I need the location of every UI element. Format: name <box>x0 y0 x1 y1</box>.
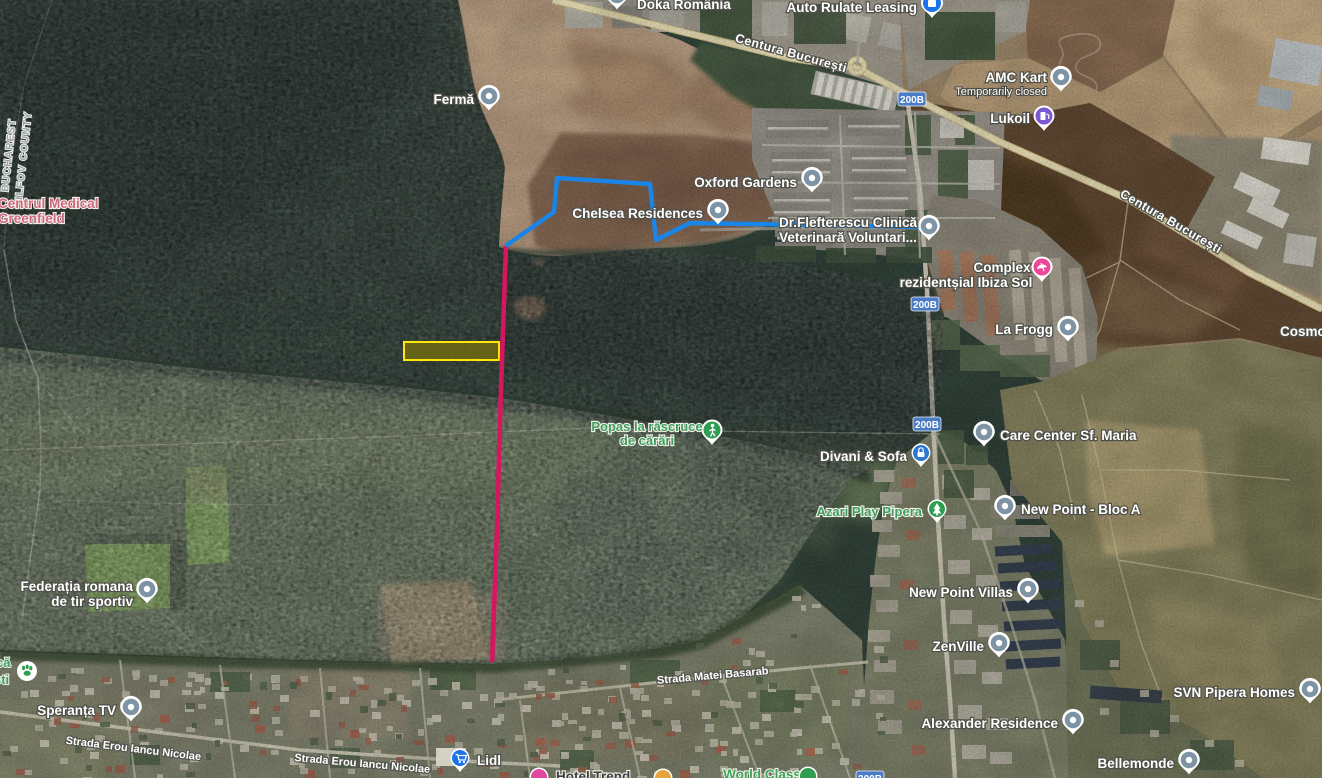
svg-text:Fermă: Fermă <box>433 92 474 107</box>
svg-text:AMC Kart: AMC Kart <box>985 70 1047 85</box>
svg-text:Chelsea Residences: Chelsea Residences <box>572 206 703 221</box>
svg-text:Bellemonde: Bellemonde <box>1097 756 1174 771</box>
svg-text:că: că <box>0 655 11 670</box>
svg-text:de tir sportiv: de tir sportiv <box>51 594 133 609</box>
svg-text:200B: 200B <box>913 300 937 311</box>
svg-text:Divani & Sofa: Divani & Sofa <box>820 449 908 464</box>
svg-text:200B: 200B <box>900 95 924 106</box>
svg-text:de cărări: de cărări <box>620 433 674 448</box>
svg-text:Dr.Flefterescu Clinică: Dr.Flefterescu Clinică <box>779 215 918 230</box>
svg-text:Auto Rulate Leasing: Auto Rulate Leasing <box>786 0 917 15</box>
svg-text:200B: 200B <box>858 774 882 778</box>
svg-text:rezidentșial Ibiza Sol: rezidentșial Ibiza Sol <box>900 275 1033 290</box>
svg-text:Alexander Residence: Alexander Residence <box>921 716 1058 731</box>
svg-text:ZenVille: ZenVille <box>932 639 984 654</box>
svg-text:Greenfield: Greenfield <box>0 211 65 226</box>
svg-text:Temporarily closed: Temporarily closed <box>955 86 1047 98</box>
svg-text:Complex: Complex <box>973 260 1031 275</box>
svg-text:Cosmo: Cosmo <box>1280 324 1322 339</box>
svg-text:Oxford Gardens: Oxford Gardens <box>694 175 797 190</box>
svg-text:Speranța TV: Speranța TV <box>37 703 116 718</box>
svg-text:La Frogg: La Frogg <box>995 322 1053 337</box>
svg-text:New Point - Bloc A: New Point - Bloc A <box>1021 502 1141 517</box>
svg-text:Doka România: Doka România <box>637 0 731 12</box>
svg-text:Hotel Trend: Hotel Trend <box>556 769 630 778</box>
svg-text:Veterinară Voluntari...: Veterinară Voluntari... <box>779 230 917 245</box>
svg-text:Azari Play Pipera: Azari Play Pipera <box>817 504 923 519</box>
svg-text:Lidl: Lidl <box>477 753 501 768</box>
svg-text:ști: ști <box>0 672 9 687</box>
svg-text:Care Center Sf. Maria: Care Center Sf. Maria <box>1000 428 1137 443</box>
svg-text:Centrul Medical: Centrul Medical <box>0 196 99 211</box>
svg-text:200B: 200B <box>915 420 939 431</box>
svg-text:World Class: World Class <box>723 767 801 778</box>
svg-text:Lukoil: Lukoil <box>990 111 1030 126</box>
svg-text:Popas la răscruce: Popas la răscruce <box>591 419 702 434</box>
svg-text:SVN Pipera Homes: SVN Pipera Homes <box>1173 685 1295 700</box>
svg-text:Federația romana: Federația romana <box>20 579 133 594</box>
svg-text:New Point Villas: New Point Villas <box>909 585 1013 600</box>
